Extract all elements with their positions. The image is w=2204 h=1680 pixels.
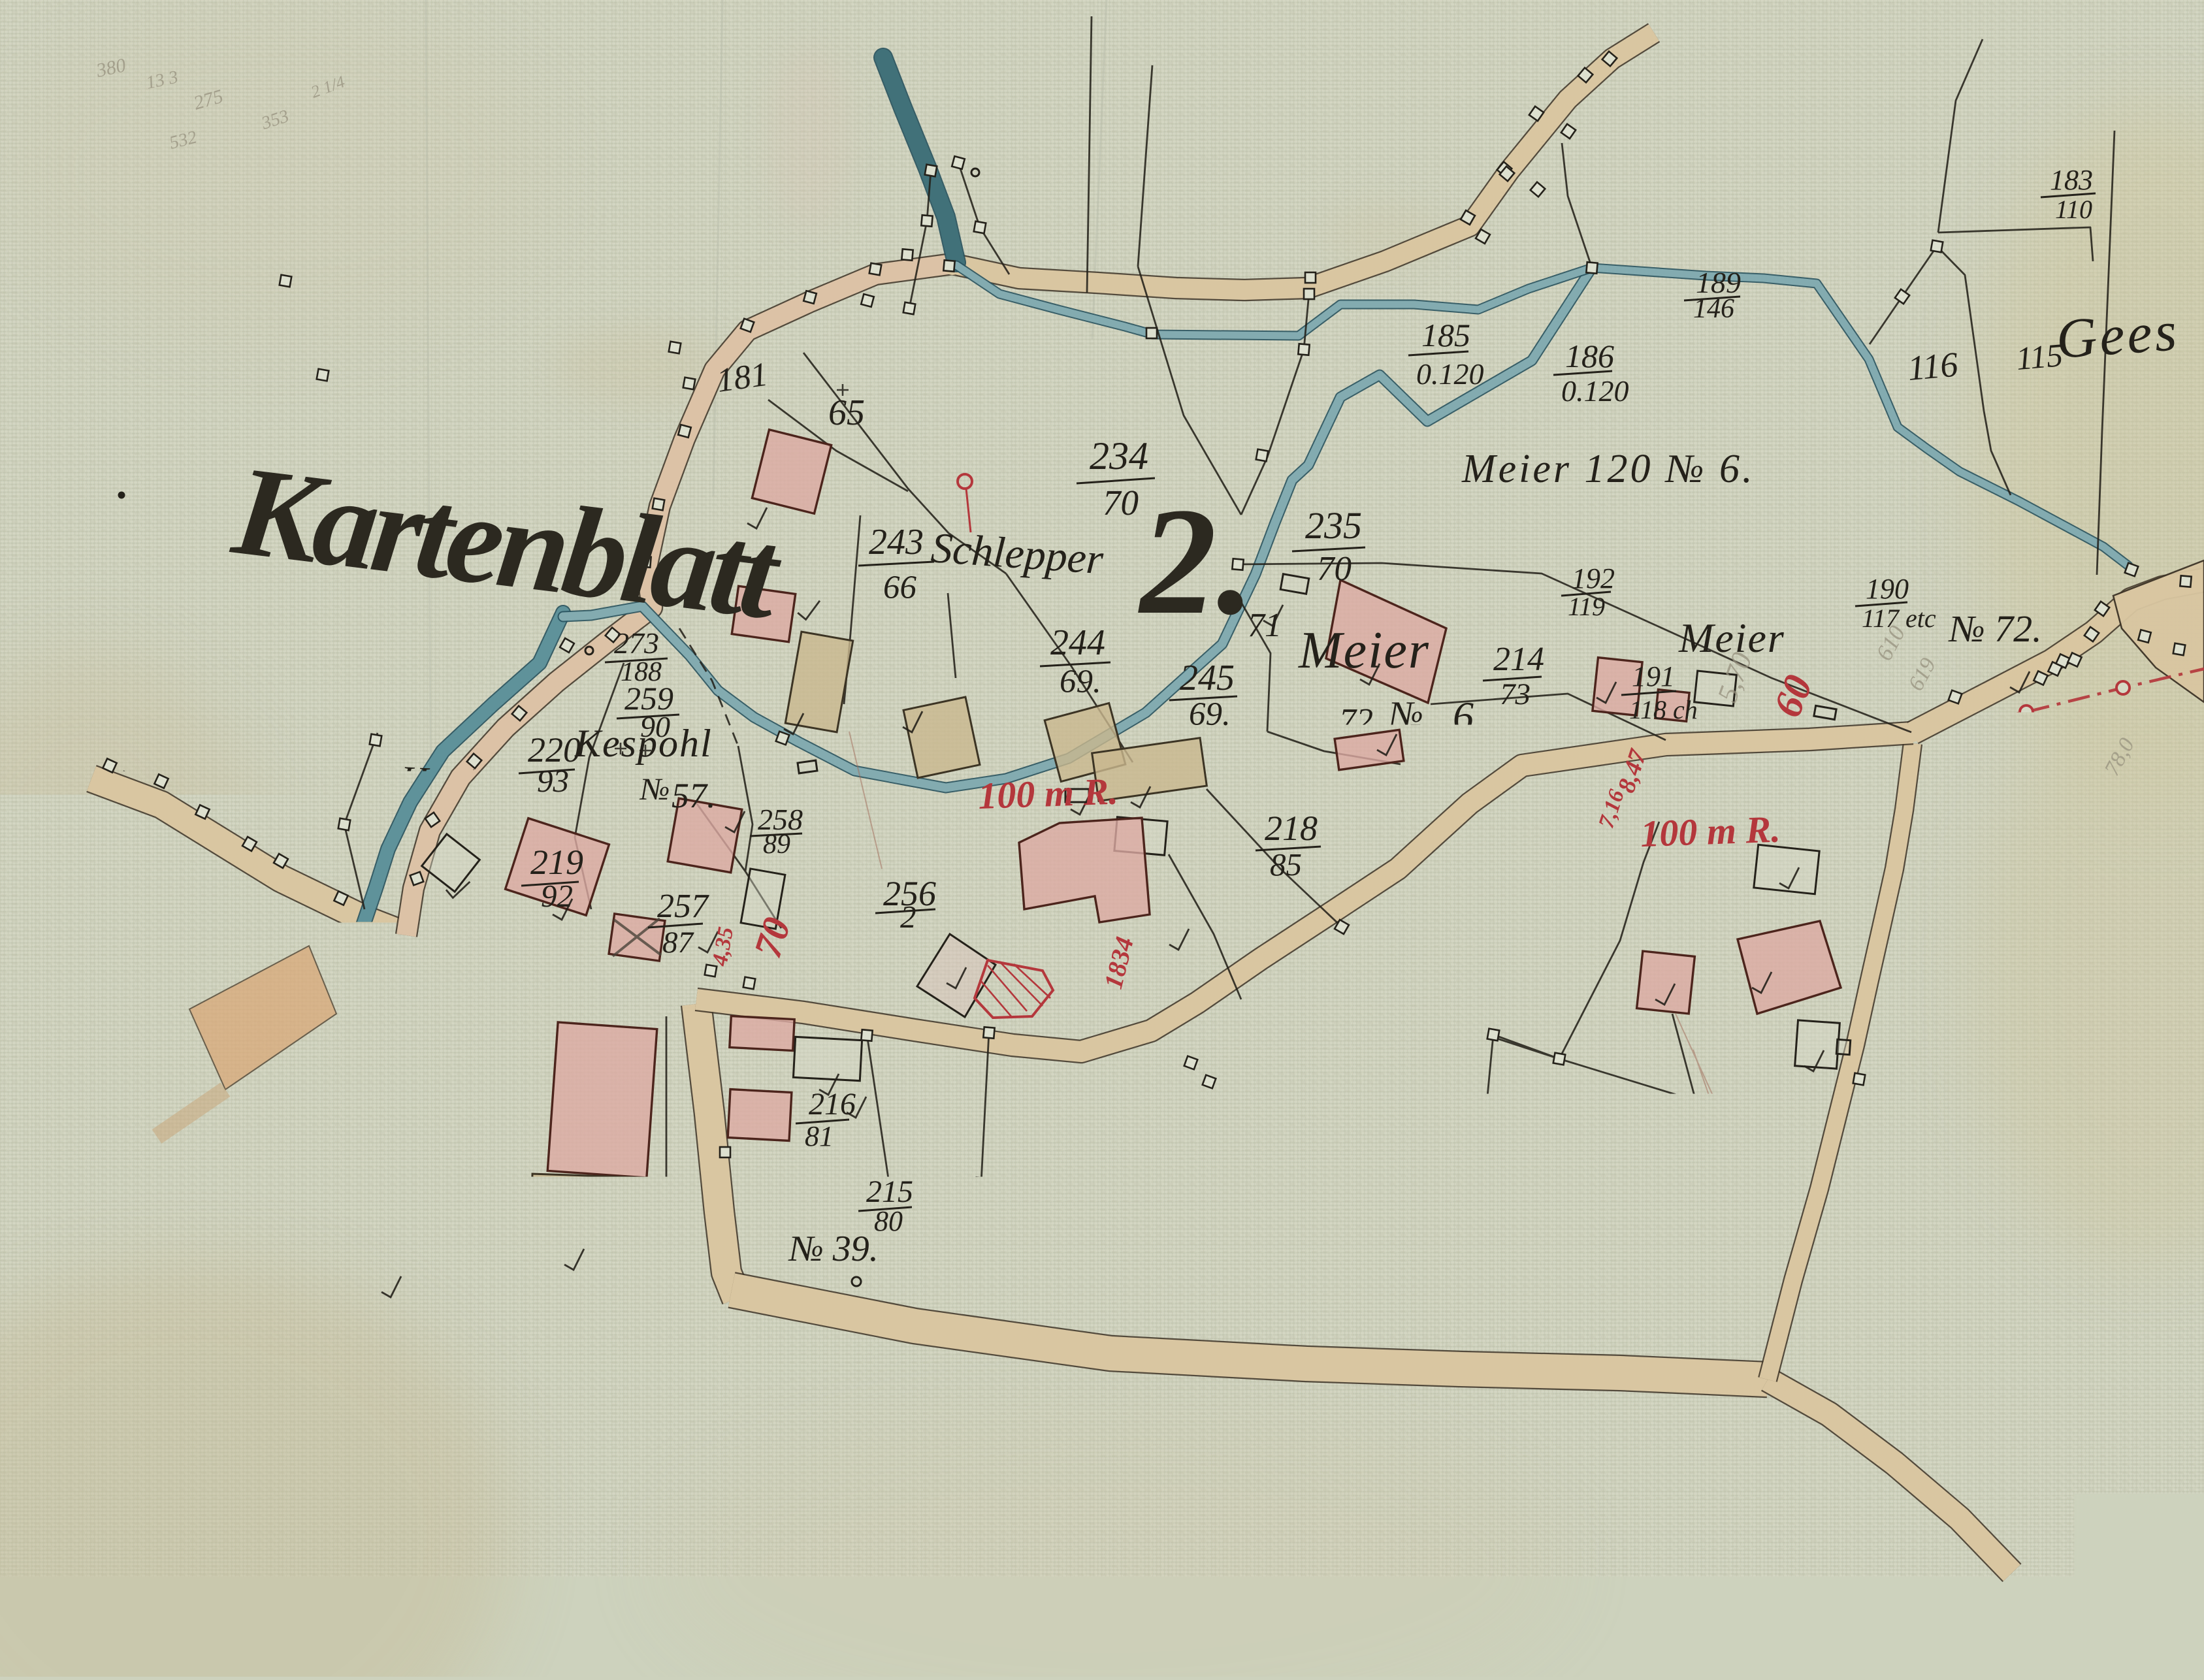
svg-text:81: 81 [805,1120,834,1152]
svg-text:257: 257 [657,888,709,925]
svg-text:85: 85 [1270,847,1302,882]
svg-text:90: 90 [640,710,670,743]
svg-text:69.: 69. [1189,696,1231,733]
svg-text:119: 119 [1568,592,1605,621]
svg-text:218: 218 [1265,809,1318,848]
svg-text:84: 84 [1163,911,1198,950]
svg-text:№ 8.: № 8. [1117,838,1199,884]
svg-text:0.120: 0.120 [1561,374,1629,408]
svg-text:184: 184 [1320,885,1372,926]
svg-text:0.120: 0.120 [1416,357,1484,391]
svg-text:244: 244 [1050,622,1105,663]
svg-text:Meier: Meier [1298,622,1430,679]
svg-text:183: 183 [2050,164,2093,196]
svg-text:91: 91 [622,834,656,871]
svg-text:65: 65 [828,393,865,433]
svg-text:190: 190 [1866,573,1909,605]
svg-text:215: 215 [866,1174,913,1209]
svg-text:219: 219 [530,843,583,882]
svg-text:243: 243 [869,522,924,562]
svg-text:73: 73 [1500,677,1531,711]
svg-text:Ungefährer Maßstab 1:2000.: Ungefährer Maßstab 1:2000. [59,1588,1099,1675]
svg-text:№ 39.: № 39. [788,1229,879,1269]
svg-text:№ 10.: № 10. [1613,1110,1708,1153]
svg-text:273: 273 [614,626,659,660]
svg-text:89: 89 [763,830,790,860]
svg-text:80: 80 [874,1205,903,1237]
svg-text:100 m R.: 100 m R. [977,770,1118,817]
svg-text:76: 76 [1722,1154,1756,1191]
svg-text:57.: 57. [672,776,716,815]
svg-text:214: 214 [1493,641,1544,678]
svg-text:191: 191 [1632,660,1675,692]
svg-text:116: 116 [1906,344,1960,387]
svg-text:75: 75 [1756,1020,1790,1057]
svg-text:Brink. 79 № 8: Brink. 79 № 8 [1084,1141,1354,1200]
svg-text:93: 93 [537,763,569,799]
svg-text:181: 181 [715,356,770,400]
svg-text:185: 185 [1421,317,1470,353]
svg-text:69.: 69. [1060,664,1101,700]
svg-text:70: 70 [1103,483,1139,523]
svg-text:234: 234 [1090,434,1148,477]
svg-text:6.: 6. [1453,693,1484,739]
svg-text:245: 245 [1180,658,1235,698]
svg-text:118 ch: 118 ch [1629,695,1698,724]
svg-text:78: 78 [1500,881,1534,918]
svg-text:Hörste.: Hörste. [346,1070,583,1157]
svg-text:Hunke: Hunke [398,758,507,805]
svg-text:2: 2 [900,899,916,935]
svg-text:100 m R.: 100 m R. [1640,808,1781,855]
svg-text:№ 72.: № 72. [1948,607,2042,650]
svg-text:70: 70 [1317,550,1352,588]
svg-text:92: 92 [541,878,573,914]
svg-text:№: № [1387,694,1423,735]
svg-text:192: 192 [1572,562,1615,594]
svg-text:Brink: Brink [939,826,1050,883]
svg-text:72: 72 [1339,702,1373,739]
svg-text:Gees: Gees [2054,299,2181,370]
svg-text:110: 110 [2055,195,2092,224]
svg-text:№: № [639,772,670,807]
svg-text:235: 235 [1305,504,1362,547]
svg-text:77: 77 [1577,1172,1612,1210]
svg-text:№ 13.: № 13. [422,801,506,839]
svg-text:Meier 120 № 6.: Meier 120 № 6. [1461,447,1755,491]
svg-text:71: 71 [1248,607,1282,644]
svg-text:2.: 2. [1138,476,1255,646]
svg-text:186: 186 [1565,338,1614,374]
svg-text:87: 87 [662,926,695,960]
svg-text:146: 146 [1693,294,1734,324]
svg-text:216: 216 [809,1087,856,1122]
svg-text:66: 66 [883,570,917,606]
